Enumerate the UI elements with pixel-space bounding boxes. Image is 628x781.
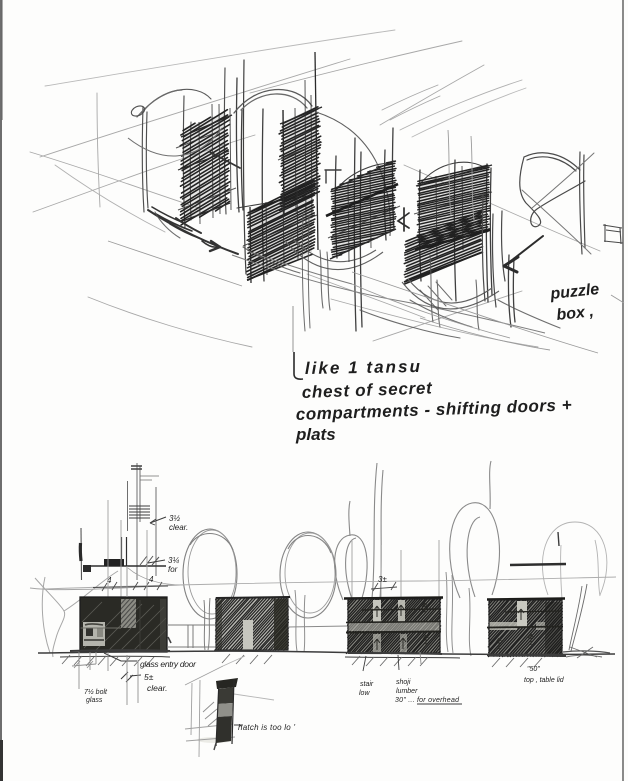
svg-text:for: for	[168, 565, 178, 574]
svg-text:30" ... for overhead: 30" ... for overhead	[395, 697, 460, 704]
svg-text:low: low	[359, 690, 370, 697]
svg-text:"50": "50"	[527, 666, 540, 673]
svg-text:3¼: 3¼	[168, 556, 179, 565]
svg-text:3±: 3±	[378, 575, 387, 584]
svg-text:3½: 3½	[169, 514, 180, 523]
svg-text:glass: glass	[86, 697, 103, 704]
svg-text:top , table lid: top , table lid	[524, 677, 565, 684]
svg-text:5±: 5±	[144, 672, 154, 682]
svg-text:lumber: lumber	[396, 688, 418, 695]
svg-text:shoji: shoji	[396, 679, 411, 686]
svg-text:like 1 tansu: like 1 tansu	[305, 357, 421, 378]
svg-text:4: 4	[149, 575, 154, 584]
svg-text:hatch is too lo ': hatch is too lo '	[238, 723, 295, 732]
svg-text:plats: plats	[295, 425, 336, 444]
svg-text:7½ bolt: 7½ bolt	[84, 688, 108, 696]
svg-text:stair: stair	[360, 681, 374, 688]
svg-text:glass entry door: glass entry door	[140, 659, 197, 669]
svg-text:clear.: clear.	[147, 683, 167, 693]
svg-text:clear.: clear.	[169, 523, 188, 532]
